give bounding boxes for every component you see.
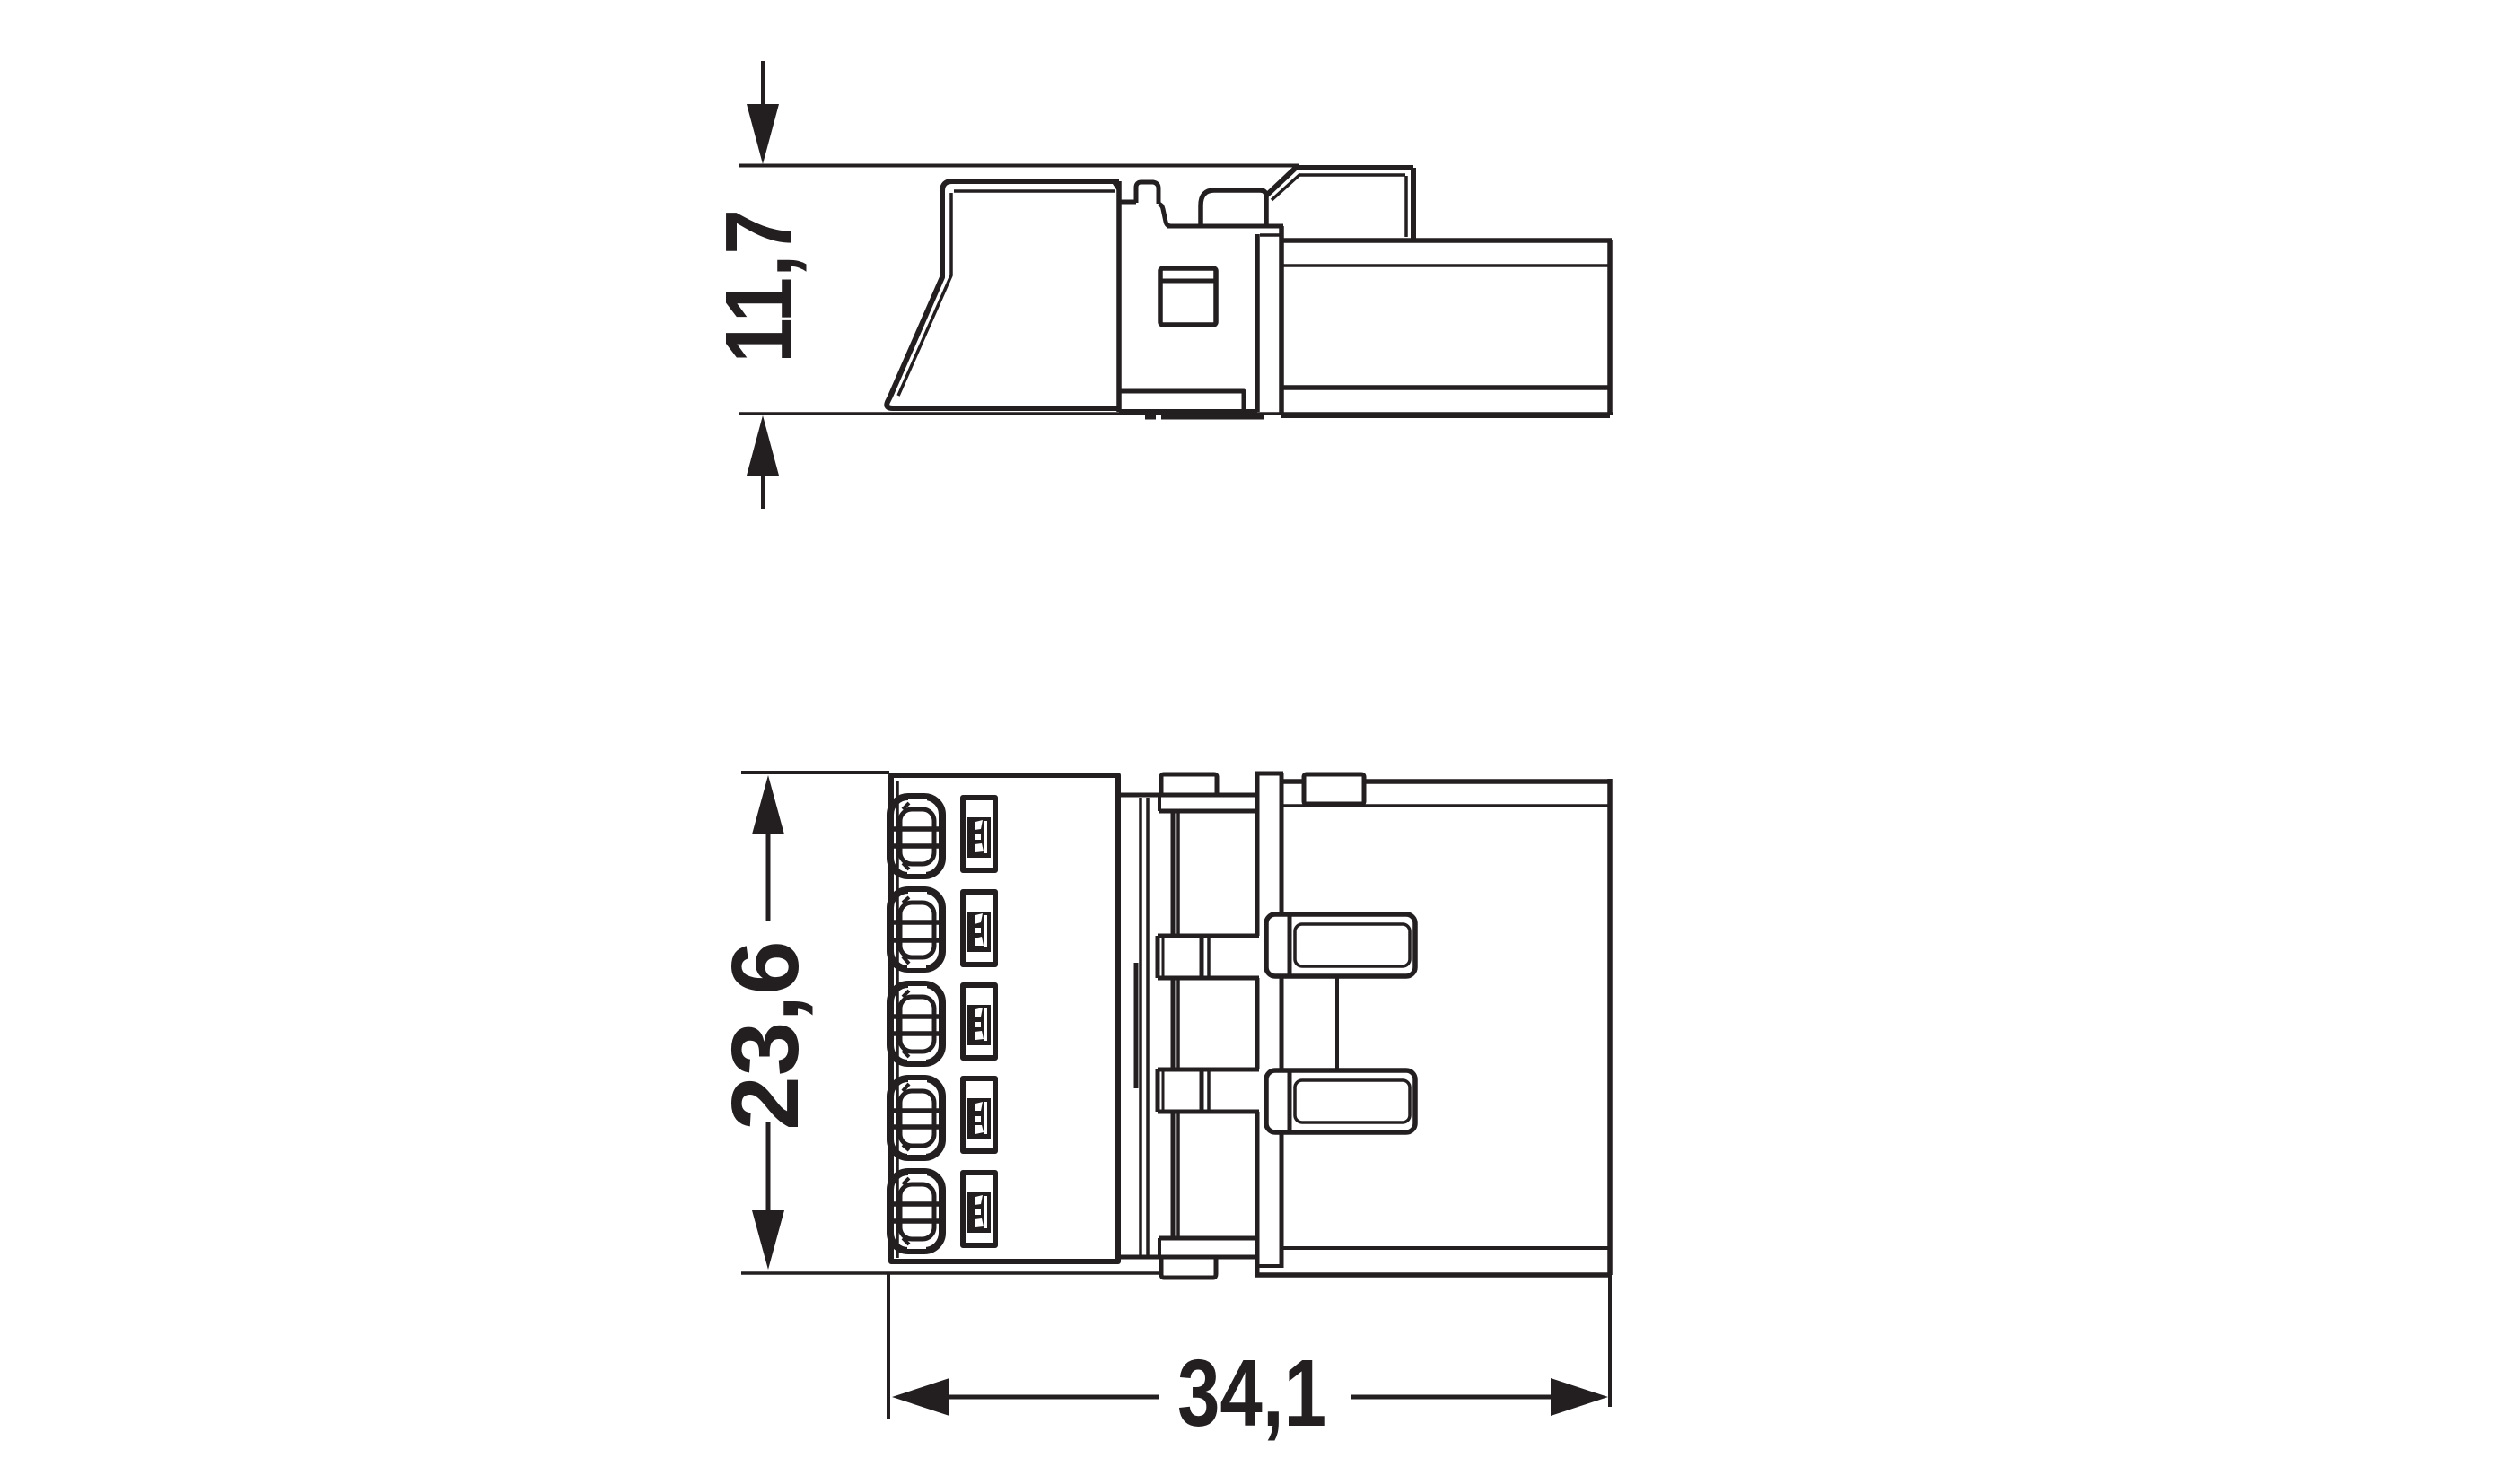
svg-text:23,6: 23,6 (712, 940, 818, 1130)
svg-text:11,7: 11,7 (705, 209, 811, 363)
svg-text:34,1: 34,1 (1177, 1340, 1326, 1446)
